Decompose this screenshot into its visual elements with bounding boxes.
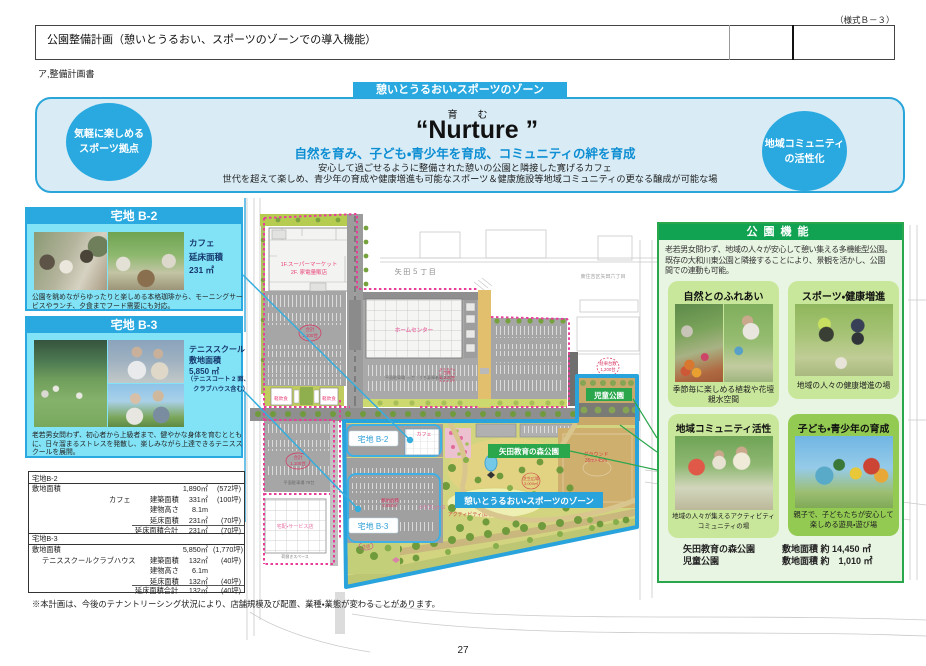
svg-text:花壇: 花壇 [362, 543, 370, 549]
svg-text:憩いとうるおい・スポーツのゾーン: 憩いとうるおい・スポーツのゾーン [464, 496, 594, 506]
svg-text:軽飲食: 軽飲食 [322, 395, 336, 402]
svg-text:軽飲食: 軽飲食 [274, 395, 288, 402]
svg-text:1,200台: 1,200台 [440, 374, 454, 380]
svg-text:3,000㎡: 3,000㎡ [524, 480, 538, 486]
svg-text:児童公園: 児童公園 [593, 390, 624, 400]
svg-text:宅地 B-3: 宅地 B-3 [358, 521, 389, 531]
svg-text:1,100台: 1,100台 [290, 460, 306, 467]
svg-text:合計: 合計 [306, 326, 315, 333]
svg-text:矢田教育の森公園: 矢田教育の森公園 [499, 446, 559, 456]
svg-text:5,850㎡: 5,850㎡ [382, 502, 398, 508]
svg-text:クラブハウス: クラブハウス [418, 504, 446, 511]
svg-text:2F. 家電量販店: 2F. 家電量販店 [291, 268, 328, 276]
svg-text:宅地 B-2: 宅地 B-2 [358, 434, 389, 444]
svg-text:駐車台数: 駐車台数 [599, 360, 617, 367]
svg-text:合計: 合計 [294, 454, 303, 461]
svg-text:東住吉区矢田六丁目: 東住吉区矢田六丁目 [580, 273, 625, 280]
svg-text:1F.スーパーマーケット: 1F.スーパーマーケット [281, 261, 338, 268]
svg-text:矢田５丁目: 矢田５丁目 [395, 267, 438, 276]
svg-text:平面駐車場 78台: 平面駐車場 78台 [284, 479, 315, 486]
svg-text:1,200台: 1,200台 [600, 366, 616, 373]
svg-text:カフェ: カフェ [416, 432, 431, 438]
svg-text:ホームセンター: ホームセンター [395, 326, 434, 334]
svg-text:宅配・サービス店: 宅配・サービス店 [277, 523, 314, 530]
svg-text:荷捌きスペース: 荷捌きスペース [281, 553, 309, 559]
